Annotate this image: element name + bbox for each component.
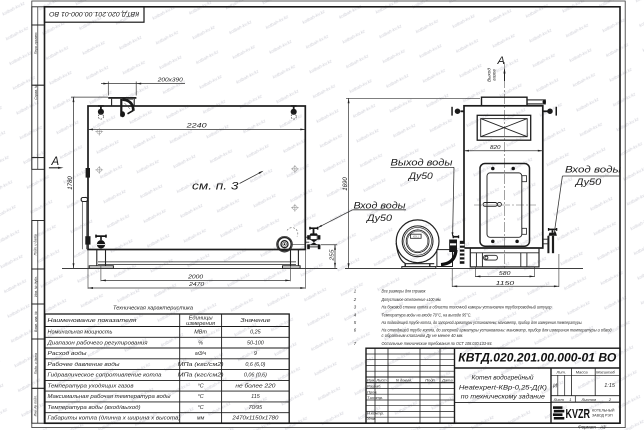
- svg-text:2470: 2470: [188, 282, 205, 288]
- svg-text:На отводящей трубе котла, до з: На отводящей трубе котла, до запорной ар…: [382, 328, 613, 333]
- svg-text:Ду50: Ду50: [366, 213, 392, 223]
- svg-text:м3/ч: м3/ч: [195, 351, 206, 357]
- svg-text:Максимальная рабочая температу: Максимальная рабочая температура воды: [48, 394, 171, 400]
- svg-text:Подп. и дата: Подп. и дата: [34, 353, 38, 374]
- svg-text:1780: 1780: [68, 176, 74, 190]
- svg-text:Температура воды на входе 70°С: Температура воды на входе 70°С, на выход…: [382, 312, 472, 317]
- svg-text:см. п. 3: см. п. 3: [192, 180, 240, 192]
- svg-text:КВТД.020.201.00.000-01 ВО: КВТД.020.201.00.000-01 ВО: [49, 10, 139, 17]
- svg-text:Подп: Подп: [425, 377, 435, 382]
- svg-text:Наименование показателя: Наименование показателя: [48, 318, 137, 324]
- svg-text:Техническая характеристика: Техническая характеристика: [113, 305, 194, 311]
- svg-text:измерения: измерения: [186, 321, 215, 327]
- svg-text:А: А: [51, 156, 60, 168]
- svg-text:На подводящей трубе котла, до: На подводящей трубе котла, до запорной а…: [382, 320, 583, 325]
- svg-text:Пров.: Пров.: [367, 389, 378, 394]
- svg-text:Справ. №: Справ. №: [34, 84, 38, 100]
- svg-text:1:15: 1:15: [604, 383, 616, 389]
- svg-text:На боковой стенке котла в обла: На боковой стенке котла в области топочн…: [382, 305, 553, 310]
- svg-text:И: И: [553, 383, 557, 389]
- svg-text:Температура воды (вход/выход): Температура воды (вход/выход): [48, 405, 141, 411]
- svg-text:1150: 1150: [496, 281, 516, 287]
- svg-text:N докум.: N докум.: [396, 377, 412, 382]
- svg-text:115: 115: [251, 394, 261, 400]
- svg-text:°С: °С: [198, 383, 204, 389]
- svg-text:МПа (кгс/см2): МПа (кгс/см2): [178, 373, 224, 379]
- svg-text:Масштаб: Масштаб: [596, 370, 615, 375]
- svg-text:А3: А3: [599, 424, 606, 429]
- svg-text:0,06 (0,6): 0,06 (0,6): [244, 373, 267, 379]
- svg-text:Гидравлическое сопротивление к: Гидравлическое сопротивление котла: [48, 373, 162, 379]
- svg-text:КОТЕЛЬНЫЙ: КОТЕЛЬНЫЙ: [592, 409, 615, 413]
- svg-text:820: 820: [490, 145, 501, 151]
- svg-text:Температура уходящих газов: Температура уходящих газов: [48, 383, 134, 389]
- svg-text:Подп. и дата: Подп. и дата: [34, 234, 38, 255]
- svg-text:1690: 1690: [343, 177, 349, 191]
- svg-text:Лит.: Лит.: [556, 370, 566, 375]
- svg-text:Выход: Выход: [486, 68, 491, 82]
- svg-text:Вход воды: Вход воды: [354, 200, 407, 210]
- svg-text:А: А: [497, 55, 505, 67]
- svg-text:с обратным клапаном Ду не мен: с обратным клапаном Ду не менее 40 мм.: [382, 333, 464, 338]
- svg-text:не более 220: не более 220: [235, 383, 275, 389]
- svg-text:Инв. № подл.: Инв. № подл.: [34, 395, 38, 416]
- svg-text:Масса: Масса: [576, 370, 589, 375]
- svg-text:70/95: 70/95: [249, 405, 263, 411]
- svg-text:2470х1150х1780: 2470х1150х1780: [231, 416, 278, 422]
- svg-text:Формат: Формат: [578, 424, 596, 429]
- svg-text:мм: мм: [197, 416, 205, 422]
- svg-text:1: 1: [569, 397, 571, 402]
- svg-text:Рабочее давление воды: Рабочее давление воды: [48, 362, 120, 368]
- svg-text:Вход воды: Вход воды: [565, 165, 622, 175]
- svg-text:ЗАВОД РЭП: ЗАВОД РЭП: [592, 414, 613, 418]
- svg-text:КВЦ: КВЦ: [413, 235, 420, 239]
- svg-text:Все размеры для справок: Все размеры для справок: [382, 289, 427, 294]
- svg-text:Дата: Дата: [441, 377, 453, 382]
- svg-text:Диапазон рабочего регулировани: Диапазон рабочего регулирования: [46, 340, 147, 346]
- svg-text:°С: °С: [198, 405, 204, 411]
- svg-text:200х390: 200х390: [157, 78, 184, 84]
- svg-text:Значение: Значение: [240, 318, 270, 324]
- svg-text:Габариты котла (длинна х ширин: Габариты котла (длинна х ширина х высота…: [48, 416, 181, 422]
- svg-text:Листов: Листов: [581, 397, 597, 402]
- svg-text:Допустимое отклонение ±100 мм.: Допустимое отклонение ±100 мм.: [381, 297, 442, 302]
- svg-text:МПа (кгс/см2): МПа (кгс/см2): [178, 362, 224, 368]
- svg-text:Котел водогрейный: Котел водогрейный: [472, 374, 535, 381]
- svg-text:КВТД.020.201.00.000-01 ВО: КВТД.020.201.00.000-01 ВО: [458, 351, 616, 365]
- svg-text:Перв. примен.: Перв. примен.: [34, 32, 38, 55]
- svg-text:Ду50: Ду50: [575, 177, 602, 187]
- svg-text:газов: газов: [492, 69, 497, 81]
- svg-text:Выход воды: Выход воды: [391, 157, 454, 167]
- svg-text:Инв. № дубл.: Инв. № дубл.: [34, 276, 38, 297]
- svg-text:580: 580: [499, 271, 512, 277]
- svg-text:Heatexpert-КВр-0,25-Д(К): Heatexpert-КВр-0,25-Д(К): [459, 384, 547, 391]
- svg-text:Лист: Лист: [553, 397, 565, 402]
- svg-text:Расход воды: Расход воды: [48, 351, 87, 357]
- svg-text:2000: 2000: [187, 275, 204, 281]
- svg-text:Н.контр.: Н.контр.: [367, 410, 384, 415]
- svg-text:%: %: [198, 340, 203, 346]
- svg-text:0,25: 0,25: [250, 330, 261, 336]
- svg-text:Разраб.: Разраб.: [367, 384, 381, 389]
- svg-text:°С: °С: [198, 394, 204, 400]
- svg-text:Номинальная мощность: Номинальная мощность: [48, 330, 113, 336]
- svg-text:Утв.: Утв.: [367, 416, 376, 421]
- svg-text:Изм: Изм: [367, 377, 375, 382]
- svg-text:50-100: 50-100: [247, 340, 264, 346]
- svg-text:МВт: МВт: [194, 330, 207, 336]
- svg-text:9: 9: [254, 351, 257, 357]
- svg-text:KVZR: KVZR: [566, 406, 591, 421]
- svg-text:0,6 (6,0): 0,6 (6,0): [245, 362, 265, 368]
- svg-text:по техническому задание: по техническому задание: [461, 393, 546, 400]
- svg-text:Лист: Лист: [375, 377, 387, 382]
- svg-text:Взам. инв. №: Взам. инв. №: [34, 311, 38, 332]
- svg-text:Ду50: Ду50: [408, 171, 433, 181]
- svg-text:255: 255: [330, 248, 336, 261]
- svg-text:2240: 2240: [185, 122, 207, 129]
- svg-text:Т.контр.: Т.контр.: [367, 395, 383, 400]
- svg-text:Остальные технические требован: Остальные технические требования по ОСТ …: [382, 341, 493, 346]
